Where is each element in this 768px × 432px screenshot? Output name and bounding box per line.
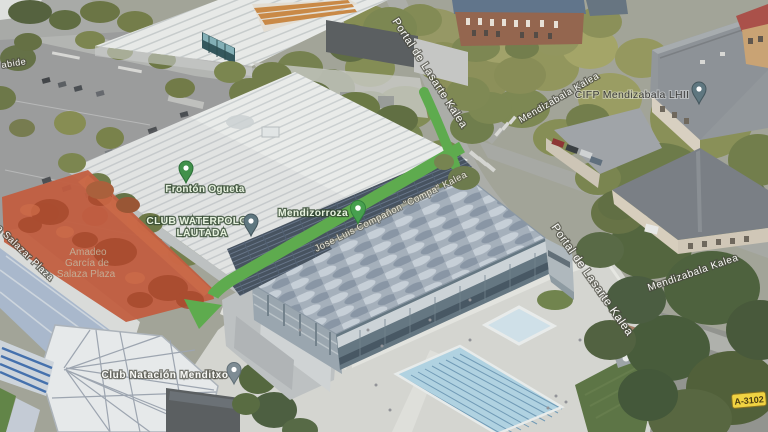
svg-text:Club Natación Menditxo: Club Natación Menditxo — [101, 370, 228, 381]
svg-text:Frontón Ogueta: Frontón Ogueta — [165, 184, 244, 195]
svg-text:García de: García de — [65, 258, 109, 269]
svg-text:Amadeo: Amadeo — [69, 247, 107, 258]
svg-text:CIFP Mendizabala LHII: CIFP Mendizabala LHII — [575, 89, 690, 101]
svg-text:Mendizorroza: Mendizorroza — [278, 208, 348, 219]
svg-text:LAUTADA: LAUTADA — [176, 228, 227, 239]
svg-text:Salaza Plaza: Salaza Plaza — [57, 269, 116, 280]
svg-text:CLUB WATERPOLO: CLUB WATERPOLO — [146, 216, 247, 227]
